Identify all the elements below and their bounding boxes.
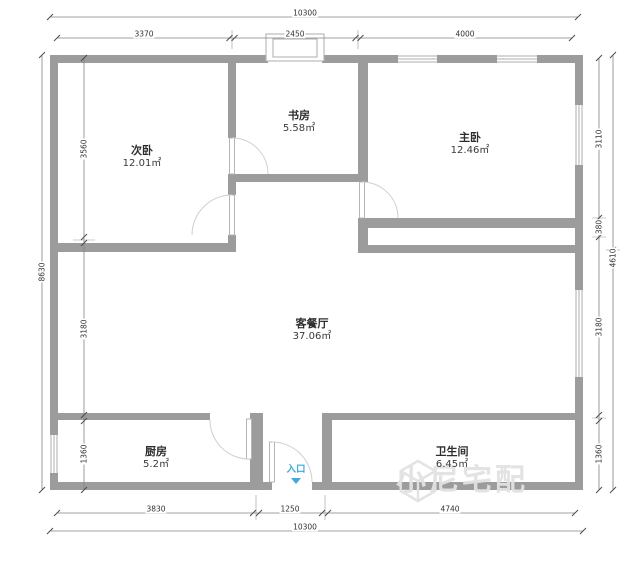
room-area: 6.45㎡ <box>436 459 469 472</box>
dim-top-total: 10300 <box>292 9 318 17</box>
dim-right-seg3: 3180 <box>595 316 603 337</box>
room-name: 厨房 <box>143 445 169 459</box>
dim-left-seg1: 3560 <box>80 138 88 159</box>
room-area: 5.2㎡ <box>143 459 169 472</box>
room-area: 37.06㎡ <box>293 331 332 344</box>
room-label-kitchen: 厨房 5.2㎡ <box>143 445 169 471</box>
dim-bottom-seg1: 3830 <box>145 505 166 513</box>
room-name: 卫生间 <box>436 445 469 459</box>
dim-bottom-total: 10300 <box>292 523 318 531</box>
floor-plan: 小尼宅配 次卧 12.01㎡ 书房 5.58㎡ 主卧 12.46㎡ 客餐厅 37… <box>0 0 640 562</box>
dim-right-seg2: 380 <box>595 219 603 235</box>
dim-top-seg1: 3370 <box>133 30 154 38</box>
dim-left-seg3: 1360 <box>80 443 88 464</box>
dim-right-seg1: 3110 <box>595 128 603 149</box>
dim-right-outer: 4610 <box>609 247 617 268</box>
entrance-label: 入口 <box>286 461 305 475</box>
dim-left-seg2: 3180 <box>80 318 88 339</box>
room-label-master-bedroom: 主卧 12.46㎡ <box>451 131 490 157</box>
room-name: 客餐厅 <box>293 317 332 331</box>
room-label-study: 书房 5.58㎡ <box>283 109 315 135</box>
entrance-arrow-icon <box>291 478 301 484</box>
room-label-bathroom: 卫生间 6.45㎡ <box>436 445 469 471</box>
dim-top-seg3: 4000 <box>454 30 475 38</box>
dim-top-seg2: 2450 <box>284 30 305 38</box>
room-area: 12.01㎡ <box>123 158 162 171</box>
room-name: 主卧 <box>451 131 490 145</box>
dim-left-total: 8630 <box>38 261 46 282</box>
dim-right-seg4: 1360 <box>595 443 603 464</box>
room-name: 次卧 <box>123 144 162 158</box>
room-label-secondary-bedroom: 次卧 12.01㎡ <box>123 144 162 170</box>
room-label-living-dining: 客餐厅 37.06㎡ <box>293 317 332 343</box>
dim-bottom-seg2: 1250 <box>279 505 300 513</box>
room-area: 5.58㎡ <box>283 123 315 136</box>
dim-bottom-seg3: 4740 <box>439 505 460 513</box>
room-area: 12.46㎡ <box>451 145 490 158</box>
labels: 次卧 12.01㎡ 书房 5.58㎡ 主卧 12.46㎡ 客餐厅 37.06㎡ … <box>0 0 640 562</box>
room-name: 书房 <box>283 109 315 123</box>
